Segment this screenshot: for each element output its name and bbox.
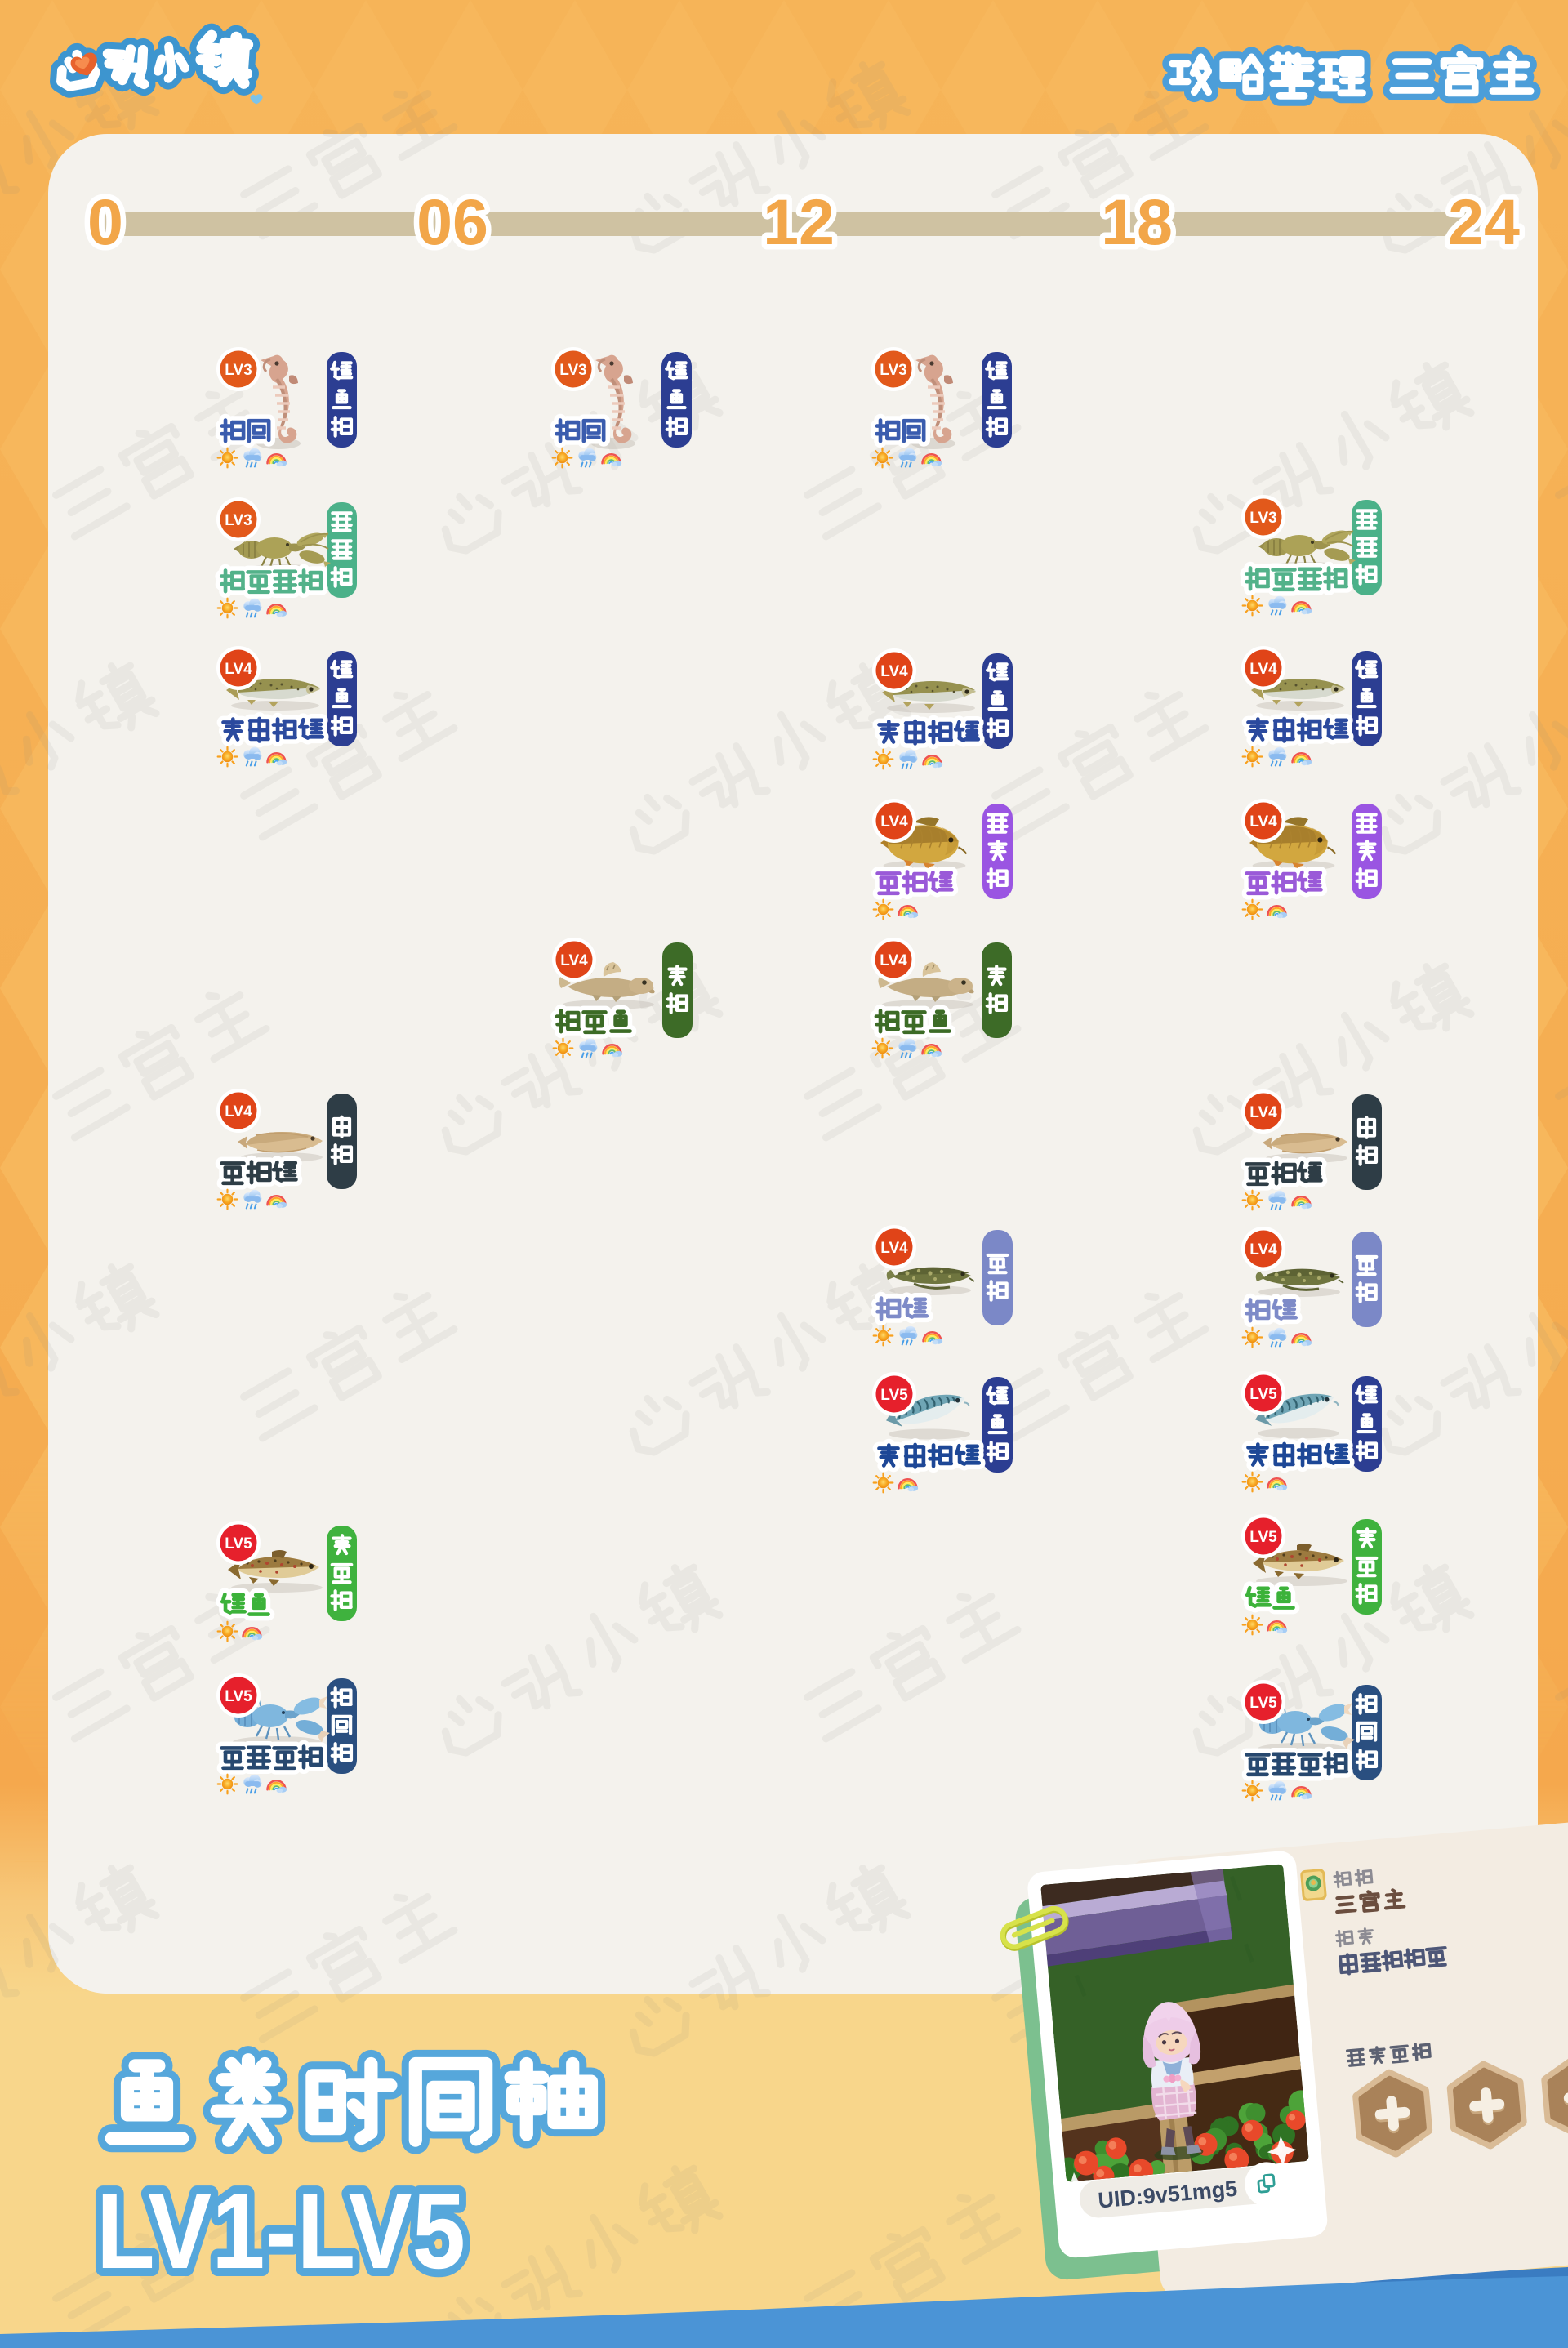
svg-text:18: 18 bbox=[1101, 185, 1173, 258]
svg-text:LV1-LV5: LV1-LV5 bbox=[96, 2171, 465, 2291]
svg-text:06: 06 bbox=[416, 185, 488, 258]
svg-text:0: 0 bbox=[87, 185, 123, 258]
svg-text:24: 24 bbox=[1448, 185, 1520, 258]
svg-text:12: 12 bbox=[763, 185, 835, 258]
